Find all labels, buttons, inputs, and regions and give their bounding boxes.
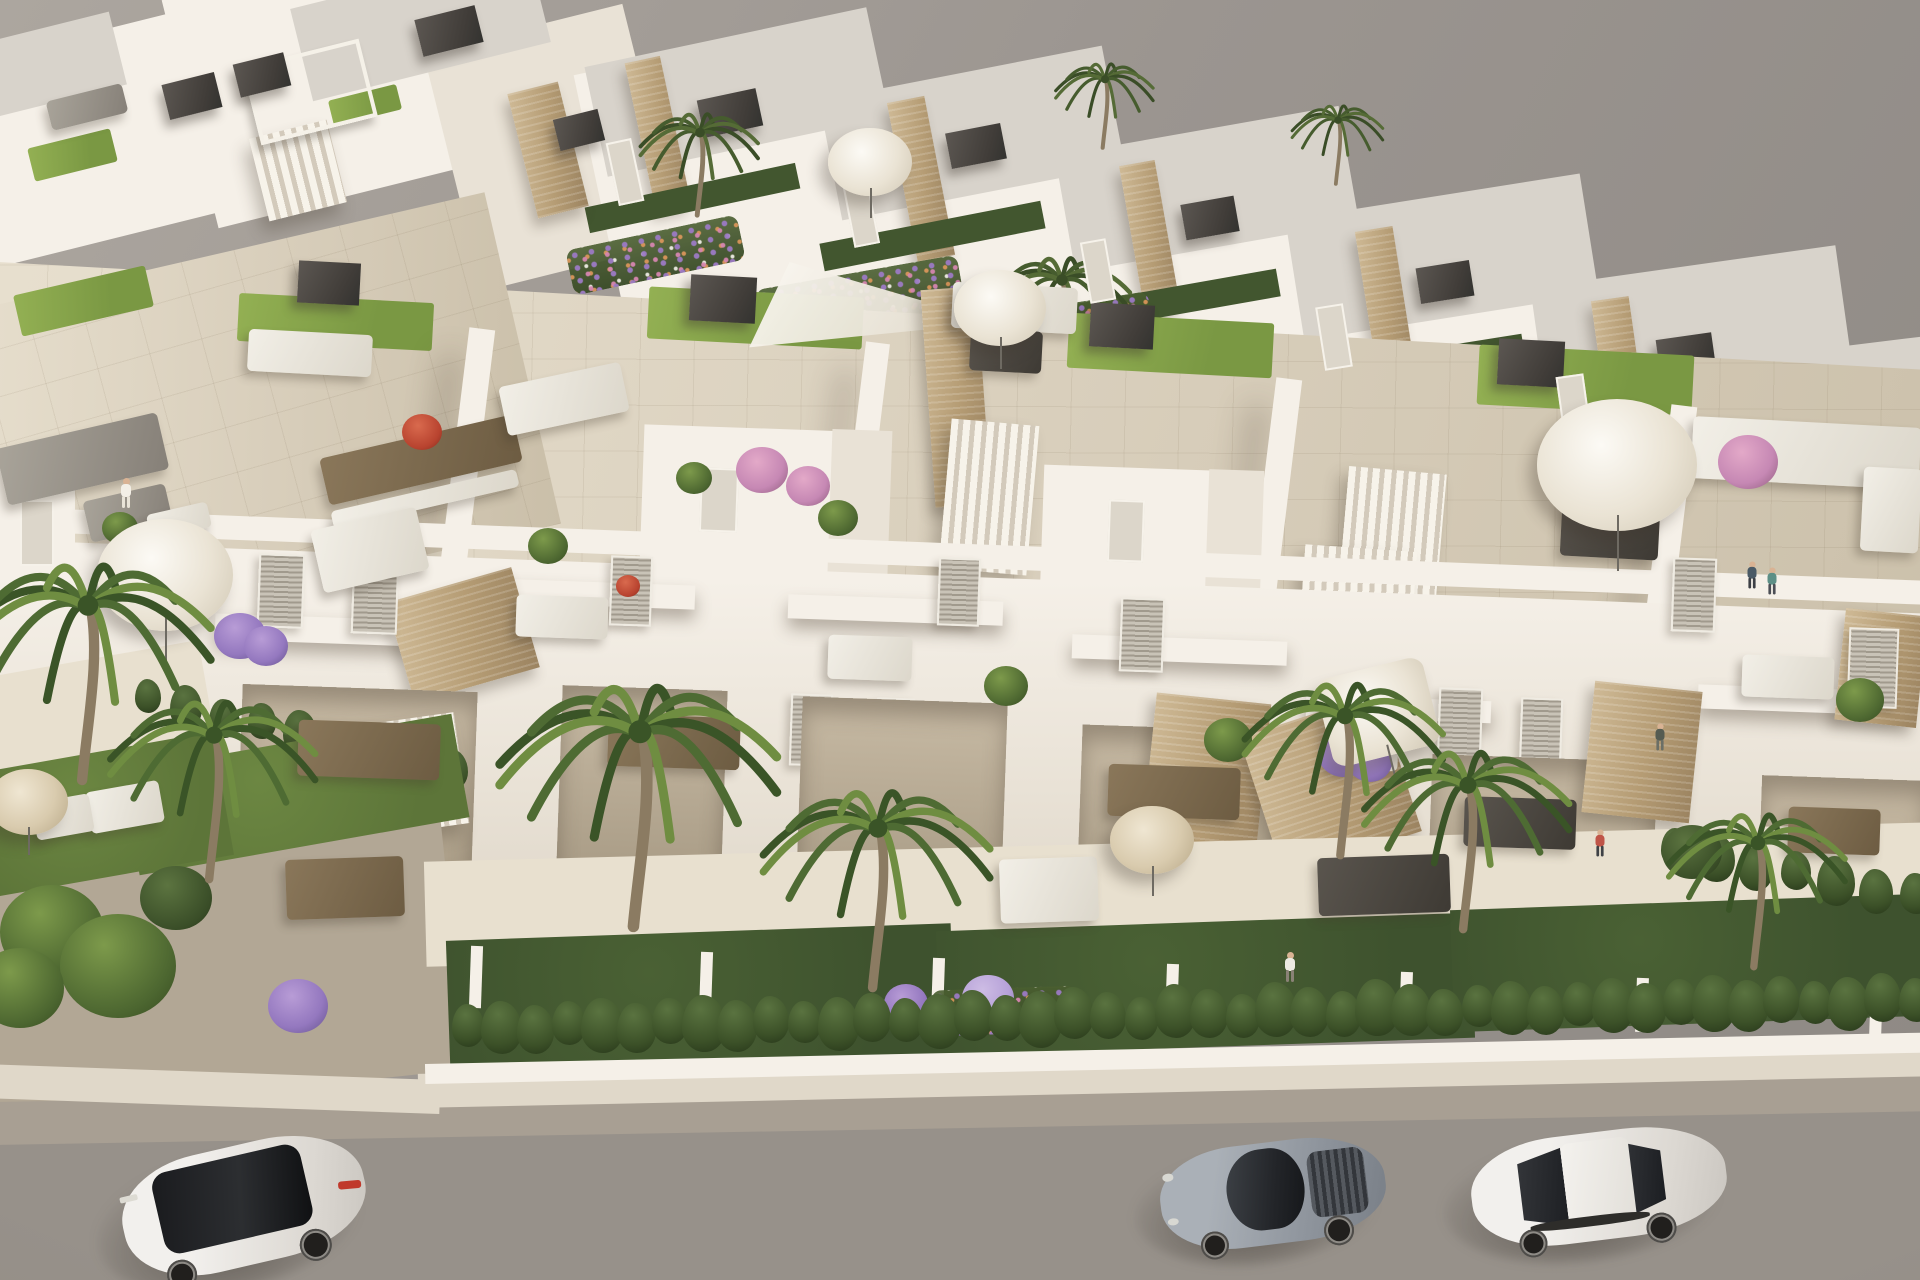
garden-daybed xyxy=(999,856,1099,923)
person-at-railing xyxy=(1766,568,1779,595)
person-at-railing xyxy=(1746,562,1759,589)
balcony-lounger xyxy=(1741,654,1834,699)
palm-tree-background xyxy=(630,78,770,218)
person-leg xyxy=(1753,578,1756,589)
pink-shrub xyxy=(786,466,830,506)
person-on-terrace xyxy=(1283,952,1297,982)
cypress-bush xyxy=(1728,980,1768,1032)
architectural-render-canvas xyxy=(0,0,1920,1280)
cypress-bush xyxy=(1426,989,1462,1036)
person-leg xyxy=(1601,846,1604,857)
green-shrub xyxy=(528,528,568,564)
louvered-shutter-window xyxy=(257,553,306,629)
roof-chimney-box xyxy=(689,274,757,323)
palm-tree xyxy=(1653,761,1863,971)
parasol-pole xyxy=(28,827,30,855)
palm-tree-background xyxy=(1047,34,1163,150)
cypress-bush xyxy=(1190,989,1228,1038)
green-shrub xyxy=(1836,678,1884,721)
parasol xyxy=(1110,806,1194,875)
person-leg xyxy=(1291,970,1294,982)
cypress-bush xyxy=(1864,973,1902,1022)
cypress-bush xyxy=(517,1005,555,1054)
palm-tree xyxy=(743,723,1013,993)
palm-tree xyxy=(1346,690,1590,934)
parasol-pole xyxy=(1617,515,1619,571)
pink-shrub xyxy=(1718,435,1778,489)
parasol xyxy=(1537,399,1697,530)
patio-column xyxy=(469,946,483,1008)
roof-chimney-box xyxy=(297,260,361,305)
sofa xyxy=(1860,467,1920,554)
louvered-shutter-window xyxy=(1671,557,1718,632)
roof-chimney-box xyxy=(1089,302,1155,349)
pink-shrub xyxy=(736,447,788,494)
parasol xyxy=(828,128,912,197)
parasol-pole xyxy=(1152,866,1154,895)
person-leg xyxy=(1768,584,1771,595)
louvered-shutter-window xyxy=(1119,597,1166,672)
green-shrub xyxy=(676,462,712,494)
green-shrub xyxy=(60,914,176,1018)
cypress-bush xyxy=(1627,983,1666,1033)
person-leg xyxy=(1656,740,1659,751)
cypress-bush xyxy=(1090,992,1126,1039)
person-leg xyxy=(1748,578,1751,589)
car-rear-engine-deck xyxy=(1305,1146,1370,1218)
cypress-bush xyxy=(1125,997,1158,1040)
person-leg xyxy=(1773,584,1776,595)
window xyxy=(1107,499,1145,562)
person-on-balcony xyxy=(1654,724,1667,751)
parasol xyxy=(954,270,1046,345)
balcony-chaise xyxy=(827,635,912,682)
green-shrub xyxy=(984,666,1028,706)
person-leg xyxy=(1286,970,1289,982)
louvered-shutter-window xyxy=(937,557,981,626)
red-shrub xyxy=(616,575,640,597)
green-shrub xyxy=(818,500,858,536)
person-leg xyxy=(1661,740,1664,751)
palm-tree xyxy=(92,640,336,884)
cypress-bush xyxy=(954,990,993,1040)
person-on-patio xyxy=(1594,830,1607,857)
person-leg xyxy=(1596,846,1599,857)
cypress-bush xyxy=(1462,985,1495,1028)
red-shrub xyxy=(402,414,442,450)
parasol-pole xyxy=(870,188,872,217)
palm-tree-background xyxy=(1284,78,1392,186)
parasol-pole xyxy=(1000,337,1002,369)
purple-shrub xyxy=(268,979,328,1033)
outdoor-sofa xyxy=(247,329,373,377)
roof-chimney-box xyxy=(1497,338,1565,387)
